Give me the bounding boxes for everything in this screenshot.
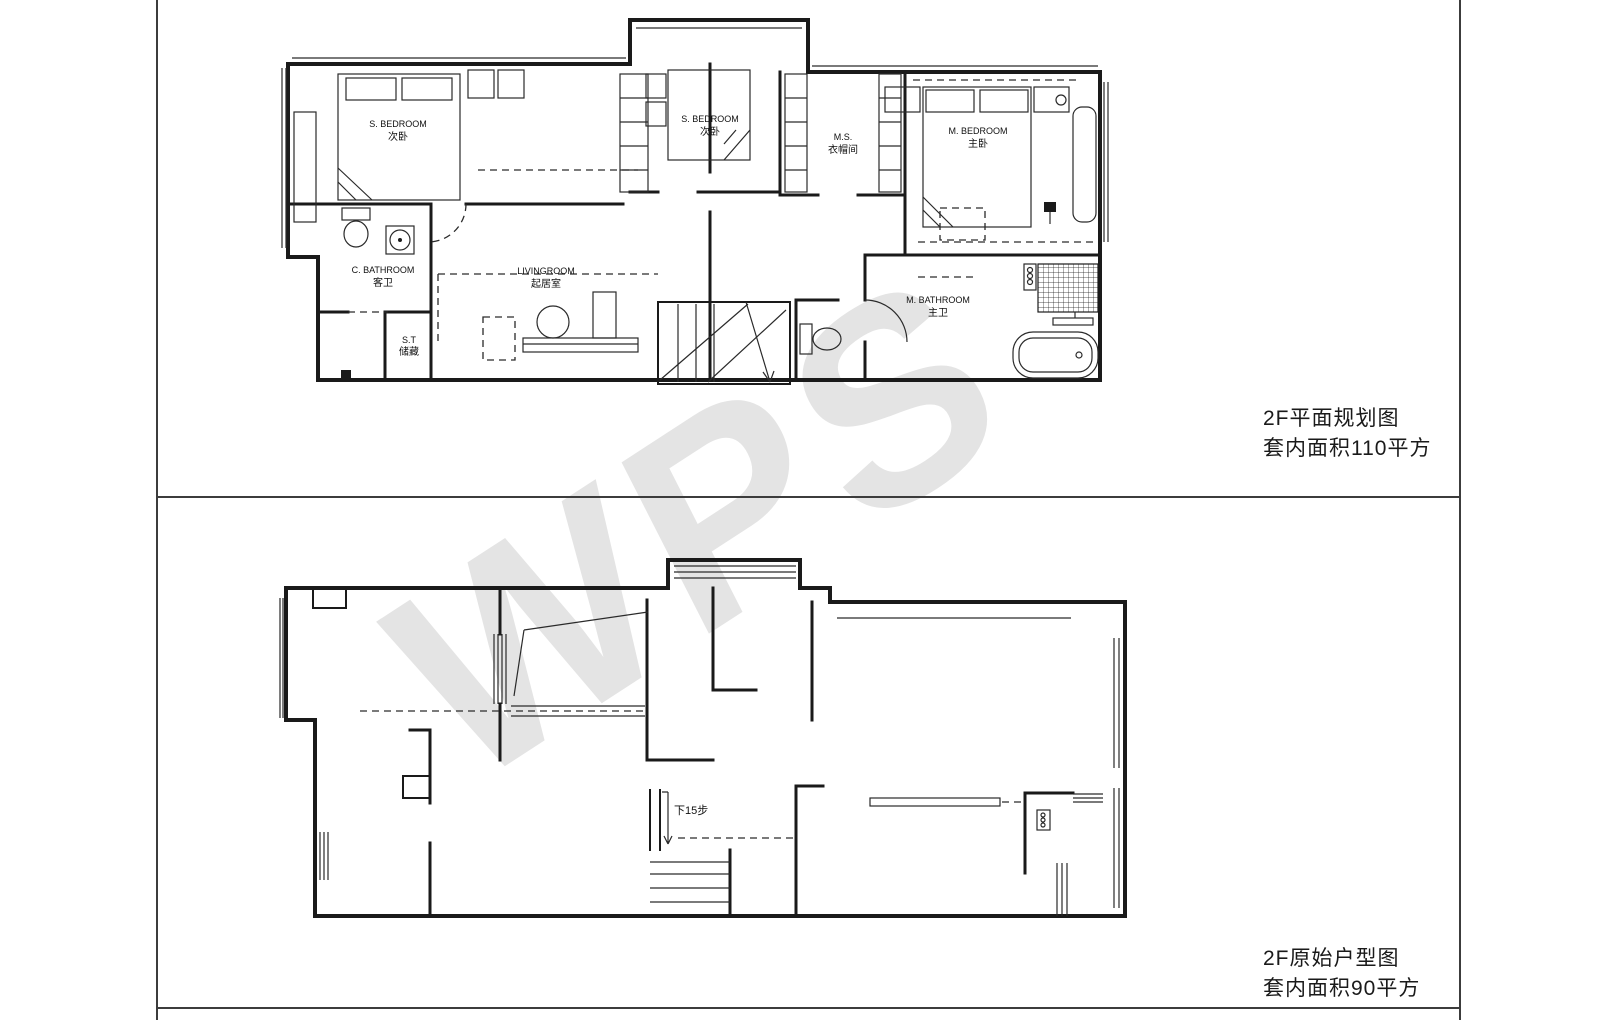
- floor-plan-page: WPS: [0, 0, 1600, 1020]
- upper-plan-area: 套内面积110平方: [1263, 434, 1431, 464]
- column-marker: [341, 370, 351, 380]
- room-label-cloakroom-en: M.S.: [834, 132, 853, 142]
- stair-note-label: 下15步: [674, 804, 708, 817]
- floor-plan-lower: 下15步: [278, 548, 1138, 928]
- bed-icon: [885, 87, 1096, 227]
- toilet-icon: [800, 324, 841, 354]
- frame-bottom-border: [156, 1007, 1461, 1009]
- room-label-m-bathroom-zh: 主卫: [928, 307, 948, 319]
- room-label-m-bedroom-zh: 主卧: [968, 137, 988, 150]
- room-label-s-bedroom-left-en: S. BEDROOM: [369, 119, 427, 129]
- counter-icon: [870, 794, 1103, 916]
- frame-left-border: [156, 0, 158, 1020]
- caption-lower-plan: 2F原始户型图 套内面积90平方: [1263, 944, 1420, 1004]
- construction-lines: [360, 612, 648, 716]
- room-label-storage-en: S.T: [402, 335, 417, 345]
- stairs-icon: [658, 302, 790, 384]
- room-label-s-bedroom-mid-zh: 次卧: [700, 125, 720, 138]
- room-label-cloakroom-zh: 衣帽间: [828, 143, 858, 156]
- wardrobe-icon: [620, 74, 648, 192]
- room-label-c-bathroom-zh: 客卫: [373, 276, 393, 289]
- room-label-c-bathroom-en: C. BATHROOM: [352, 265, 415, 275]
- upper-plan-title: 2F平面规划图: [1263, 404, 1431, 434]
- room-label-s-bedroom-mid-en: S. BEDROOM: [681, 114, 739, 124]
- caption-upper-plan: 2F平面规划图 套内面积110平方: [1263, 404, 1431, 464]
- interior-walls: [313, 588, 1073, 916]
- lower-plan-title: 2F原始户型图: [1263, 944, 1420, 974]
- desk-icon: [294, 70, 524, 222]
- frame-right-border: [1459, 0, 1461, 1020]
- panel-divider: [156, 496, 1461, 498]
- interior-walls: [288, 64, 1100, 380]
- door-swing-arc: [865, 300, 907, 342]
- room-label-living-zh: 起居室: [531, 277, 561, 290]
- sink-icon: [386, 226, 414, 254]
- stairs-icon: [650, 792, 796, 902]
- room-label-m-bedroom-en: M. BEDROOM: [948, 126, 1007, 136]
- room-label-m-bathroom-en: M. BATHROOM: [906, 295, 970, 305]
- room-labels: S. BEDROOM 次卧 S. BEDROOM 次卧 M.S. 衣帽间 M. …: [352, 114, 1008, 358]
- lower-plan-area: 套内面积90平方: [1263, 974, 1420, 1004]
- room-label-living-en: LIVINGROOM: [517, 266, 575, 276]
- window-lines: [280, 566, 1119, 908]
- shower-icon: [1024, 264, 1098, 325]
- sofa-icon: [523, 292, 638, 352]
- bathtub-icon: [1013, 332, 1098, 378]
- floor-plan-upper: S. BEDROOM 次卧 S. BEDROOM 次卧 M.S. 衣帽间 M. …: [278, 12, 1138, 392]
- toilet-icon: [342, 208, 370, 247]
- room-label-s-bedroom-left-zh: 次卧: [388, 130, 408, 143]
- room-label-storage-zh: 储藏: [399, 345, 419, 358]
